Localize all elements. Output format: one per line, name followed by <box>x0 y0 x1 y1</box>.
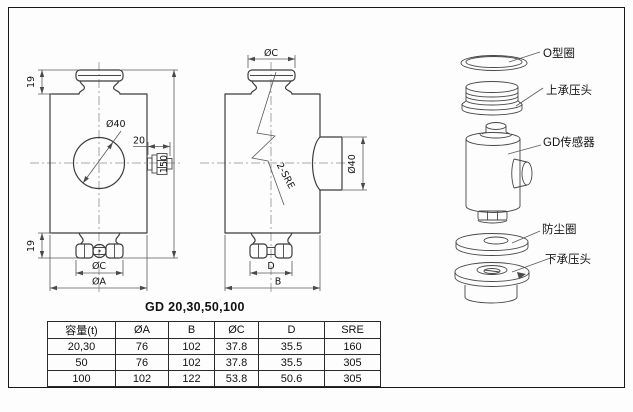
front-top-neck <box>79 81 120 94</box>
table-header-row: 容量(t) ØA B ØC D SRE <box>48 322 381 339</box>
front-dim-da: ØA <box>92 277 106 288</box>
table-cell: 37.8 <box>215 339 259 355</box>
table-cell: 53.8 <box>215 371 259 387</box>
upper-bearing-head-drawing <box>462 82 522 116</box>
side-body-outline <box>225 94 320 233</box>
front-view-drawing: 19 19 150 Ø40 20 ØC ØA <box>26 62 180 292</box>
dust-ring-drawing <box>456 234 528 256</box>
table-header-cell: ØC <box>215 322 259 339</box>
table-cell: 160 <box>325 339 381 355</box>
upper-head-label: 上承压头 <box>546 84 592 97</box>
table-header-cell: B <box>169 322 215 339</box>
table-cell: 76 <box>116 355 169 371</box>
side-bottom-neck <box>251 233 292 244</box>
side-dim-dc: ØC <box>264 48 278 59</box>
front-bottom-neck <box>79 233 120 244</box>
table-cell: 76 <box>116 339 169 355</box>
table-cell: 20,30 <box>48 339 116 355</box>
table-cell: 102 <box>169 355 215 371</box>
lower-bearing-head-drawing <box>455 263 529 304</box>
table-cell: 100 <box>48 371 116 387</box>
table-cell: 122 <box>169 371 215 387</box>
gd-sensor-label: GD传感器 <box>543 135 595 149</box>
table-cell: 102 <box>169 339 215 355</box>
table-header-cell: 容量(t) <box>48 322 116 339</box>
leader-line <box>512 231 540 243</box>
table-row: 100 102 122 53.8 50.6 305 <box>48 371 381 387</box>
front-dim-20: 20 <box>133 136 145 147</box>
table-header-cell: ØA <box>116 322 169 339</box>
table-cell: 50.6 <box>259 371 325 387</box>
table-cell: 305 <box>325 355 381 371</box>
front-body-outline <box>50 94 147 233</box>
spec-table: 容量(t) ØA B ØC D SRE 20,30 76 102 37.8 35… <box>47 321 381 387</box>
front-dim-19-top: 19 <box>26 76 37 88</box>
exploded-view-drawing: O型圈 上承压头 GD传感器 防尘圈 下承压头 <box>455 46 595 303</box>
table-header-cell: D <box>259 322 325 339</box>
table-row: 50 76 102 37.8 35.5 305 <box>48 355 381 371</box>
o-ring-label: O型圈 <box>543 46 575 60</box>
side-dim-b: B <box>275 277 282 288</box>
lower-head-label: 下承压头 <box>545 253 591 266</box>
table-cell: 102 <box>116 371 169 387</box>
front-dim-bore: Ø40 <box>106 119 126 130</box>
table-cell: 37.8 <box>215 355 259 371</box>
side-boss <box>313 137 343 190</box>
side-dim-boss-d40: Ø40 <box>347 154 358 174</box>
table-cell: 35.5 <box>259 355 325 371</box>
leader-line <box>516 88 543 106</box>
table-row: 20,30 76 102 37.8 35.5 160 <box>48 339 381 355</box>
front-dim-19-bottom: 19 <box>26 240 37 252</box>
leader-line <box>508 145 541 154</box>
sre-leader-line <box>252 72 284 205</box>
front-dim-150: 150 <box>159 155 170 173</box>
table-cell: 35.5 <box>259 339 325 355</box>
table-cell: 50 <box>48 355 116 371</box>
model-series-title: GD 20,30,50,100 <box>145 300 245 314</box>
table-header-cell: SRE <box>325 322 381 339</box>
table-cell: 305 <box>325 371 381 387</box>
drawing-sheet: 19 19 150 Ø40 20 ØC ØA <box>0 0 633 412</box>
side-dim-d: D <box>267 261 274 272</box>
o-ring-drawing <box>461 56 527 71</box>
dust-ring-label: 防尘圈 <box>542 222 577 236</box>
gd-sensor-drawing <box>466 123 532 224</box>
front-dim-dc: ØC <box>92 261 106 272</box>
side-view-drawing: ØC 2-SRE Ø40 D B <box>200 48 367 292</box>
